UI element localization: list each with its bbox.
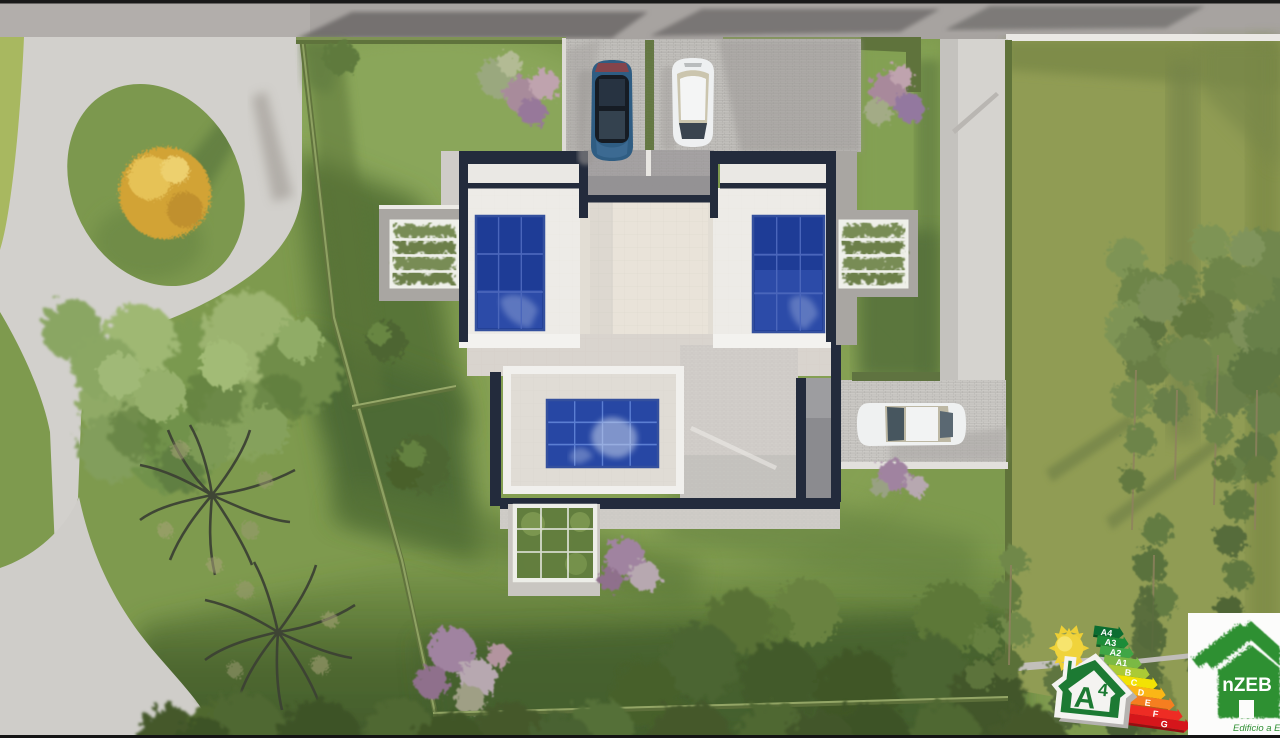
- svg-text:G: G: [1160, 719, 1168, 730]
- svg-text:Edificio a Energía Qu: Edificio a Energía Qu: [1233, 723, 1280, 734]
- svg-text:nZEB: nZEB: [1222, 675, 1272, 696]
- svg-text:A: A: [1073, 681, 1098, 716]
